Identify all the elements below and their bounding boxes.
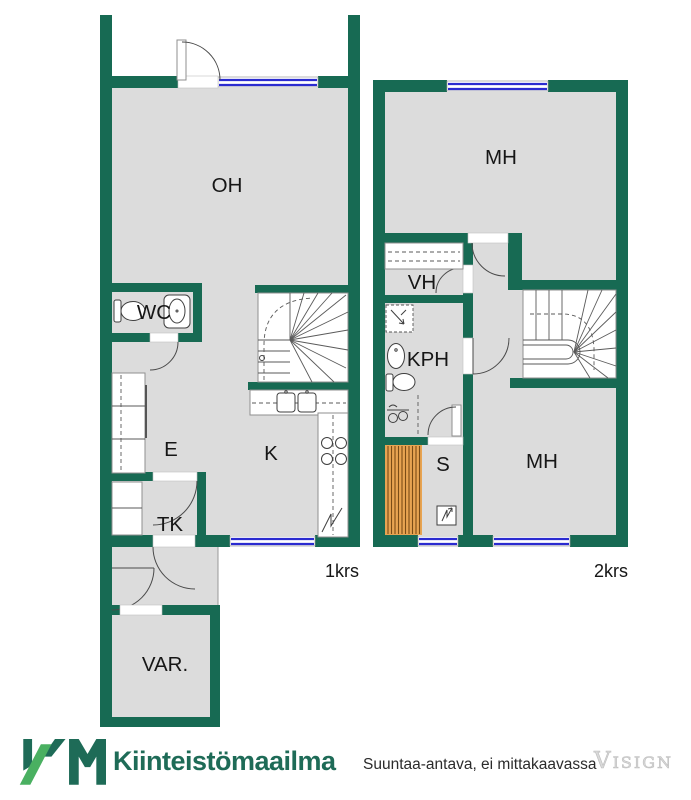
window bbox=[447, 81, 548, 91]
visign-watermark: Visign bbox=[594, 748, 673, 774]
floor2-plan: MH VH KPH S MH 2krs bbox=[373, 80, 628, 581]
window bbox=[493, 536, 570, 546]
floor2-label: 2krs bbox=[594, 561, 628, 581]
shelf-icon bbox=[385, 243, 463, 269]
sauna-bench bbox=[385, 445, 422, 535]
room-label-oh: OH bbox=[212, 174, 243, 197]
window bbox=[218, 77, 318, 87]
kitchen-sink-icon bbox=[250, 390, 348, 415]
sink-icon bbox=[388, 344, 405, 369]
room-label-mh-bottom: MH bbox=[526, 450, 558, 473]
floor1-label: 1krs bbox=[325, 561, 359, 581]
room-label-k: K bbox=[264, 442, 278, 465]
window bbox=[230, 536, 315, 546]
staircase-icon bbox=[258, 293, 348, 382]
shower-icon bbox=[386, 305, 413, 332]
floorplan-canvas: OH WC E K TK VAR. 1krs bbox=[0, 0, 691, 735]
room-label-e: E bbox=[164, 438, 178, 461]
room-label-wc: WC bbox=[137, 301, 171, 324]
var-door bbox=[120, 605, 162, 615]
room-label-mh-top: MH bbox=[485, 146, 517, 169]
kitchen-counter bbox=[318, 413, 348, 537]
wardrobe-icon bbox=[112, 373, 146, 473]
staircase-icon bbox=[523, 290, 616, 378]
room-label-var: VAR. bbox=[142, 653, 188, 676]
brand-name: Kiinteistömaailma bbox=[113, 746, 336, 777]
wardrobe-icon bbox=[112, 482, 142, 535]
room-label-tk: TK bbox=[157, 513, 184, 536]
room-label-kph: KPH bbox=[407, 348, 449, 371]
toilet-icon bbox=[386, 374, 415, 392]
footer: Kiinteistömaailma Suuntaa-antava, ei mit… bbox=[0, 730, 691, 800]
entry-door bbox=[177, 40, 220, 88]
disclaimer-text: Suuntaa-antava, ei mittakaavassa bbox=[363, 756, 597, 774]
room-label-vh: VH bbox=[408, 271, 436, 294]
room-label-s: S bbox=[436, 453, 450, 476]
floor1-plan: OH WC E K TK VAR. 1krs bbox=[100, 15, 360, 727]
sauna-heater-icon bbox=[437, 506, 456, 525]
km-logo: Kiinteistömaailma bbox=[18, 734, 336, 788]
km-logo-mark bbox=[18, 734, 106, 788]
window bbox=[418, 536, 458, 546]
